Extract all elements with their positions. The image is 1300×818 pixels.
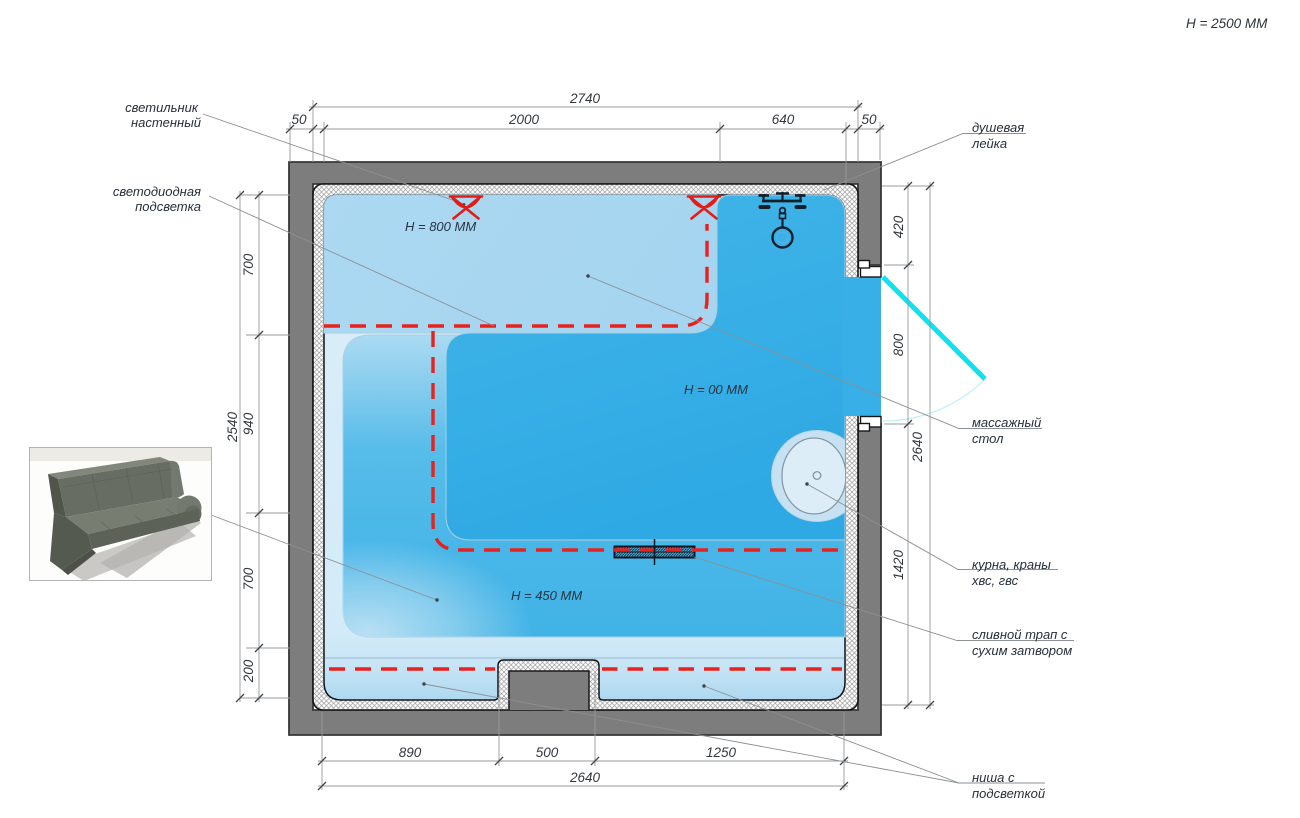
svg-text:Н = 450 ММ: Н = 450 ММ	[511, 588, 582, 603]
svg-text:700: 700	[241, 567, 256, 590]
svg-text:2740: 2740	[569, 91, 601, 106]
svg-text:Н = 2500 ММ: Н = 2500 ММ	[1186, 16, 1268, 31]
svg-text:массажный: массажный	[972, 415, 1041, 430]
svg-text:700: 700	[241, 253, 256, 276]
svg-text:Н = 00 ММ: Н = 00 ММ	[684, 382, 748, 397]
svg-text:подсветка: подсветка	[135, 199, 201, 214]
svg-text:лейка: лейка	[971, 136, 1007, 151]
svg-text:душевая: душевая	[972, 120, 1024, 135]
svg-text:светодиодная: светодиодная	[113, 184, 201, 199]
svg-text:500: 500	[536, 745, 559, 760]
svg-text:50: 50	[861, 112, 877, 127]
svg-text:1420: 1420	[891, 549, 906, 580]
svg-text:сливной трап с: сливной трап с	[972, 627, 1068, 642]
svg-text:стол: стол	[972, 431, 1004, 446]
svg-text:ниша с: ниша с	[972, 770, 1015, 785]
svg-text:подсветкой: подсветкой	[972, 786, 1045, 801]
svg-text:1250: 1250	[706, 745, 737, 760]
svg-text:настенный: настенный	[131, 115, 201, 130]
svg-text:светильник: светильник	[125, 100, 199, 115]
svg-text:курна, краны: курна, краны	[972, 557, 1051, 572]
svg-text:640: 640	[772, 112, 795, 127]
svg-text:50: 50	[291, 112, 307, 127]
svg-text:2640: 2640	[910, 431, 925, 463]
svg-text:2540: 2540	[225, 411, 240, 443]
svg-text:Н = 800 ММ: Н = 800 ММ	[405, 219, 476, 234]
svg-text:800: 800	[891, 333, 906, 356]
svg-text:420: 420	[891, 215, 906, 238]
svg-text:2640: 2640	[569, 770, 601, 785]
svg-text:2000: 2000	[508, 112, 540, 127]
svg-text:сухим затвором: сухим затвором	[972, 643, 1072, 658]
svg-text:200: 200	[241, 659, 256, 683]
svg-text:хвс, гвс: хвс, гвс	[971, 573, 1019, 588]
svg-text:940: 940	[241, 412, 256, 435]
svg-text:890: 890	[399, 745, 422, 760]
